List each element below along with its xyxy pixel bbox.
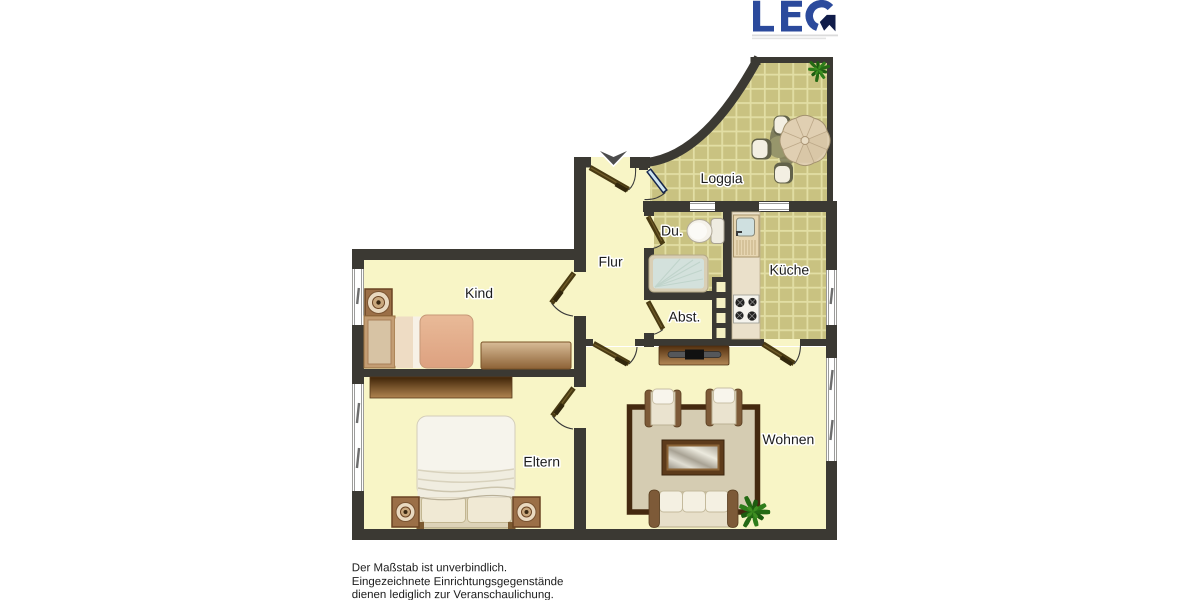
svg-text:Flur: Flur	[599, 253, 623, 269]
svg-text:Der Maßstab ist unverbindlich.: Der Maßstab ist unverbindlich.	[352, 562, 507, 574]
svg-text:dienen lediglich zur Veranscha: dienen lediglich zur Veranschaulichung.	[352, 589, 554, 600]
svg-text:Du.: Du.	[661, 223, 683, 239]
svg-text:Wohnen: Wohnen	[762, 431, 814, 447]
svg-text:Eingezeichnete Einrichtungsgeg: Eingezeichnete Einrichtungsgegenstände	[352, 576, 564, 588]
svg-text:Abst.: Abst.	[668, 309, 700, 325]
svg-text:Küche: Küche	[770, 262, 810, 278]
svg-text:Eltern: Eltern	[523, 453, 560, 469]
svg-text:Loggia: Loggia	[701, 170, 743, 186]
svg-text:Kind: Kind	[465, 285, 493, 301]
